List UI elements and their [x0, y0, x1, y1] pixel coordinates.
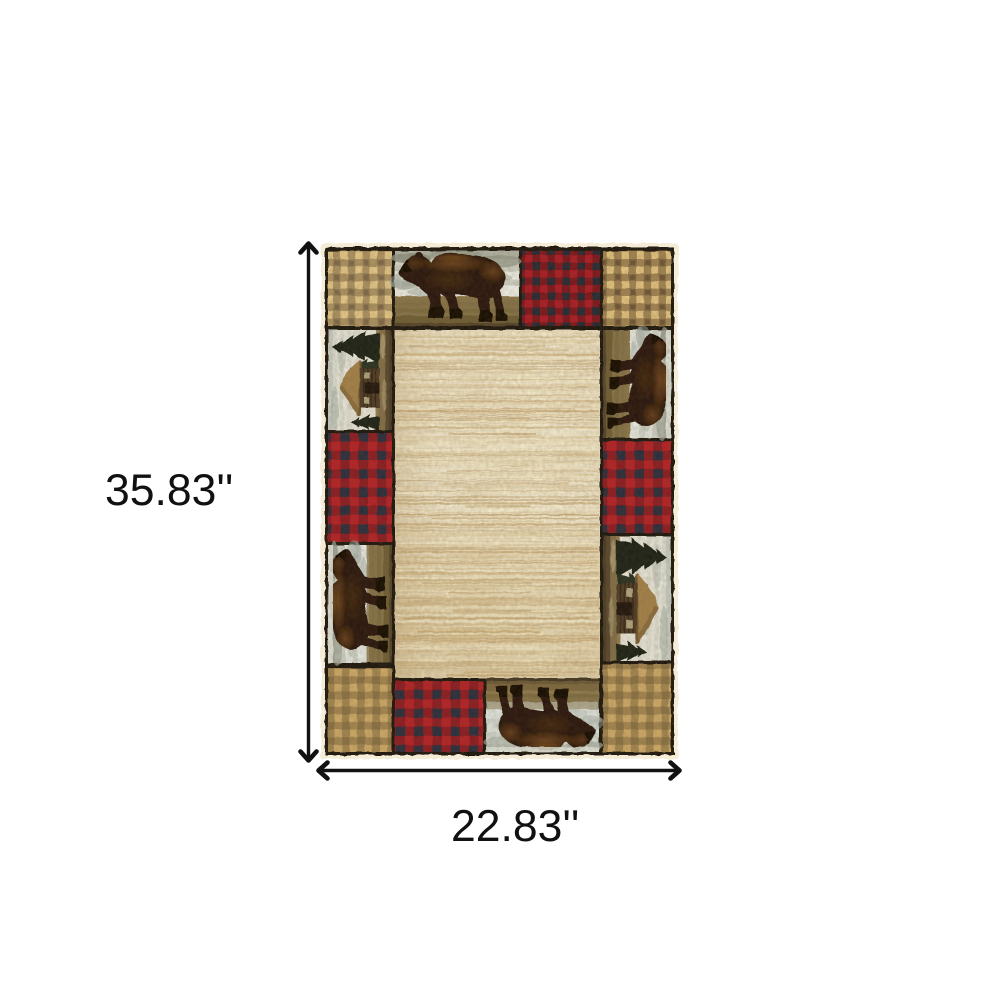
svg-text:22.83'': 22.83''	[451, 802, 579, 851]
svg-text:35.83'': 35.83''	[105, 466, 233, 515]
